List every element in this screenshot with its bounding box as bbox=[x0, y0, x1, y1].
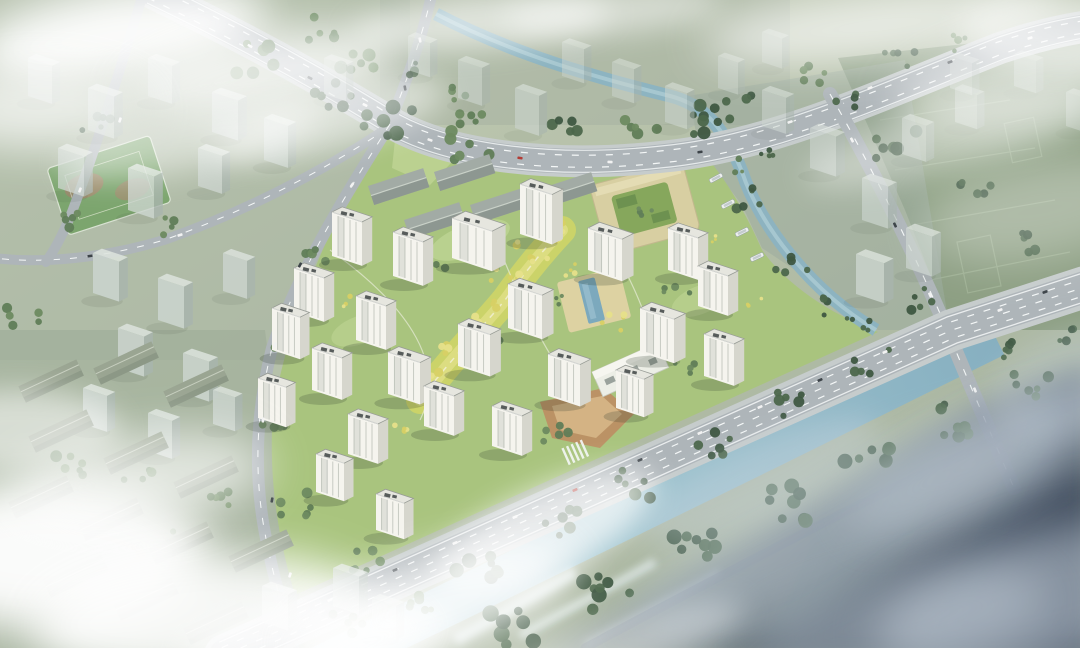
car bbox=[261, 417, 264, 422]
aerial-rendering-stage bbox=[0, 0, 1080, 648]
aerial-rendering-image bbox=[0, 0, 1080, 648]
car bbox=[607, 161, 612, 164]
